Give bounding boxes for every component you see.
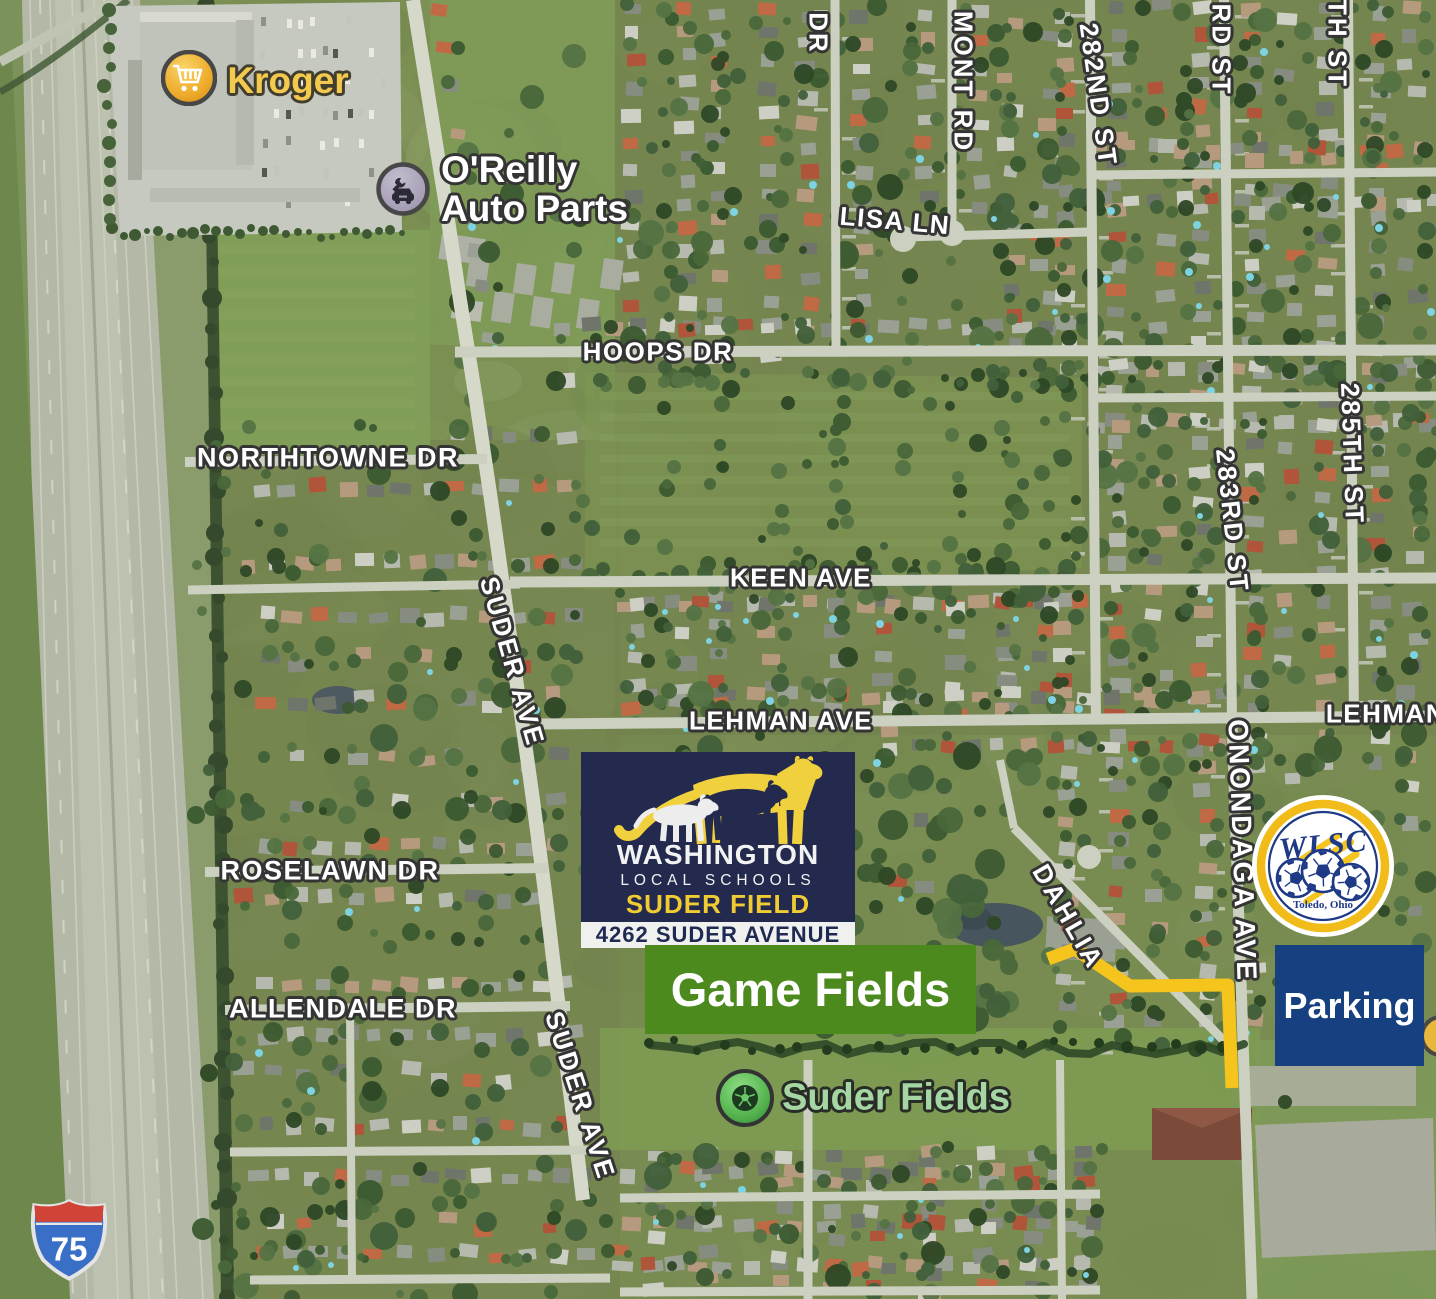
svg-text:75: 75	[51, 1232, 88, 1269]
svg-text:LOCAL SCHOOLS: LOCAL SCHOOLS	[620, 872, 815, 889]
svg-text:WASHINGTON: WASHINGTON	[617, 839, 819, 870]
svg-text:SUDER FIELD: SUDER FIELD	[626, 889, 810, 919]
svg-text:Toledo, Ohio: Toledo, Ohio	[1293, 899, 1354, 911]
